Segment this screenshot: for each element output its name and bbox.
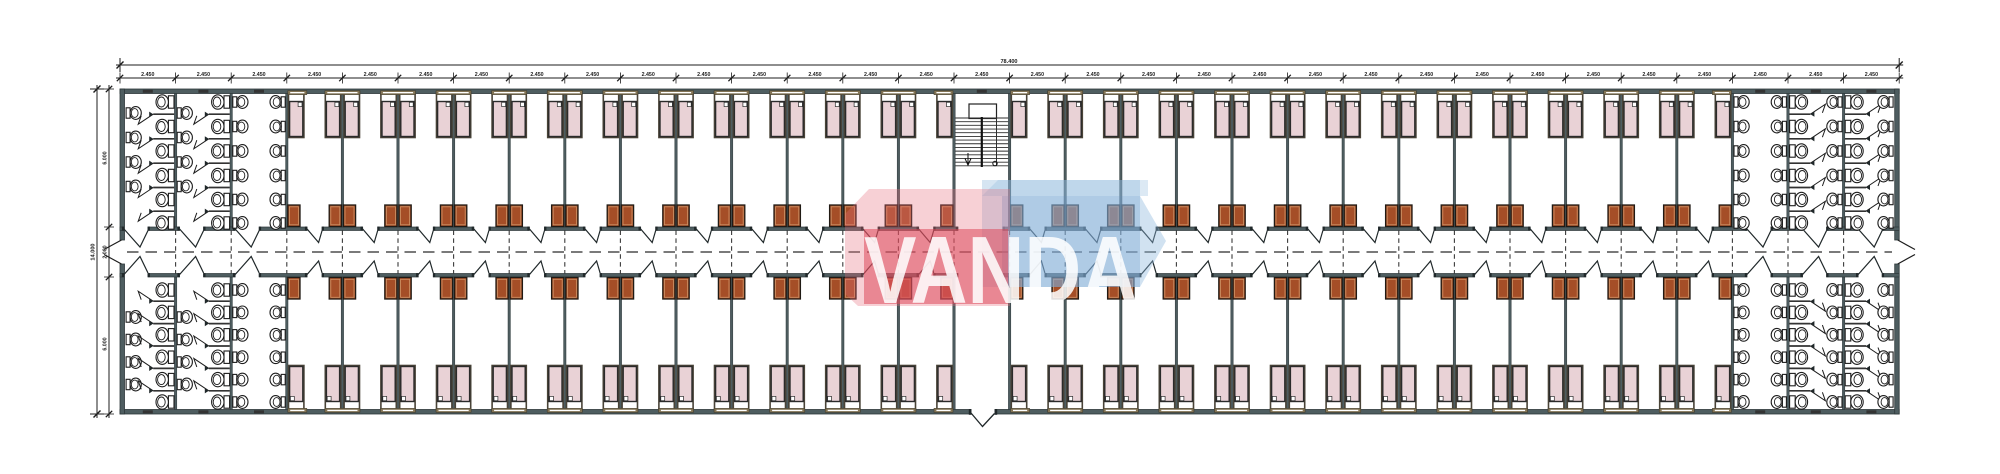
svg-text:6.000: 6.000 xyxy=(103,337,109,350)
svg-text:2.450: 2.450 xyxy=(1031,72,1044,78)
svg-text:2.450: 2.450 xyxy=(197,72,210,78)
svg-text:2.450: 2.450 xyxy=(753,72,766,78)
svg-text:2.450: 2.450 xyxy=(864,72,877,78)
svg-text:2.450: 2.450 xyxy=(1364,72,1377,78)
svg-text:VANDA: VANDA xyxy=(864,217,1138,324)
svg-text:2.450: 2.450 xyxy=(697,72,710,78)
svg-text:2.450: 2.450 xyxy=(1476,72,1489,78)
svg-text:2.450: 2.450 xyxy=(1309,72,1322,78)
svg-text:2.450: 2.450 xyxy=(586,72,599,78)
svg-text:2.450: 2.450 xyxy=(252,72,265,78)
svg-text:2.450: 2.450 xyxy=(1865,72,1878,78)
svg-text:14.000: 14.000 xyxy=(91,243,97,260)
svg-text:2.450: 2.450 xyxy=(1086,72,1099,78)
svg-text:2.450: 2.450 xyxy=(1698,72,1711,78)
svg-text:2.450: 2.450 xyxy=(1754,72,1767,78)
svg-text:2.450: 2.450 xyxy=(475,72,488,78)
svg-text:2.450: 2.450 xyxy=(1198,72,1211,78)
svg-text:2.450: 2.450 xyxy=(1142,72,1155,78)
svg-text:2.450: 2.450 xyxy=(1253,72,1266,78)
svg-text:2.450: 2.450 xyxy=(920,72,933,78)
svg-text:6.000: 6.000 xyxy=(103,151,109,164)
svg-text:2.450: 2.450 xyxy=(975,72,988,78)
svg-text:2.450: 2.450 xyxy=(308,72,321,78)
svg-text:2.450: 2.450 xyxy=(1587,72,1600,78)
svg-text:78.400: 78.400 xyxy=(1000,59,1017,65)
svg-text:2.450: 2.450 xyxy=(1420,72,1433,78)
svg-text:2.450: 2.450 xyxy=(530,72,543,78)
svg-text:2.450: 2.450 xyxy=(141,72,154,78)
svg-text:2.450: 2.450 xyxy=(642,72,655,78)
svg-text:2.450: 2.450 xyxy=(419,72,432,78)
svg-text:2.450: 2.450 xyxy=(364,72,377,78)
svg-text:2.450: 2.450 xyxy=(1642,72,1655,78)
svg-text:2.450: 2.450 xyxy=(808,72,821,78)
svg-text:2.450: 2.450 xyxy=(1809,72,1822,78)
svg-text:2.450: 2.450 xyxy=(1531,72,1544,78)
